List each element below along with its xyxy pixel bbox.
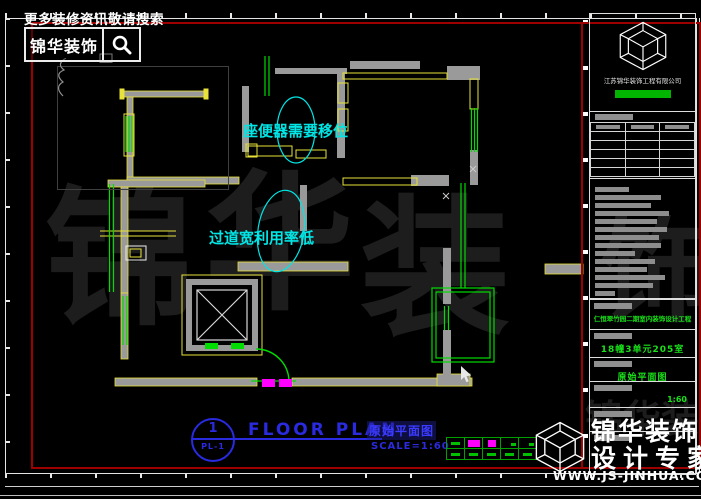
brand-cube-logo-icon	[533, 420, 587, 474]
brand-website: WWW.JS-JINHUA.COM	[553, 468, 701, 483]
sheet-code: PL-1	[193, 440, 233, 454]
company-cube-logo-icon	[617, 20, 669, 72]
project-name-row: 仁恒翠竹园二期室内装饰设计工程	[590, 299, 695, 329]
title-block-logo-section: 江苏锦华装饰工程有限公司	[590, 14, 695, 112]
sheet-scale: SCALE=1:60	[371, 441, 450, 452]
red-divider	[581, 22, 583, 467]
redacted-label	[594, 333, 632, 339]
redacted-label	[594, 303, 632, 309]
brand-logo-block: 锦华装饰 设计专家 WWW.JS-JINHUA.COM	[531, 410, 701, 496]
legend-swatch-magenta	[468, 440, 480, 447]
sheet-title-cn: 原始平面图	[367, 421, 436, 440]
redacted-label	[594, 361, 632, 367]
redacted-label	[595, 114, 633, 120]
legend-table	[446, 437, 537, 460]
drawing-name-row: 原始平面图	[590, 357, 695, 381]
company-badge	[615, 90, 671, 98]
search-brand-text: 锦华装饰	[26, 33, 102, 57]
project-name: 仁恒翠竹园二期室内装饰设计工程	[590, 313, 695, 323]
company-name: 江苏锦华装饰工程有限公司	[594, 76, 691, 85]
search-box[interactable]: 锦华装饰	[24, 27, 141, 62]
promo-headline: 更多装修资讯敬请搜索	[24, 8, 164, 28]
promo-block: 更多装修资讯敬请搜索 锦华装饰	[24, 8, 164, 28]
title-block-notes	[590, 179, 695, 299]
sheet-number: 1	[193, 420, 233, 438]
redacted-label	[594, 385, 632, 391]
scale-value: 1:60	[590, 395, 695, 404]
unit-number: 18幢3单元205室	[590, 342, 695, 355]
sheet-number-bubble: 1 PL-1	[191, 418, 235, 462]
title-block-grid	[590, 112, 695, 179]
scale-row: 1:60	[590, 381, 695, 407]
search-icon[interactable]	[104, 34, 139, 56]
unit-row: 18幢3单元205室	[590, 329, 695, 357]
legend-swatch-magenta	[488, 440, 496, 447]
title-block: 江苏锦华装饰工程有限公司 仁恒翠竹园二期室内装饰设计工程 18幢3单元205室 …	[589, 13, 696, 475]
